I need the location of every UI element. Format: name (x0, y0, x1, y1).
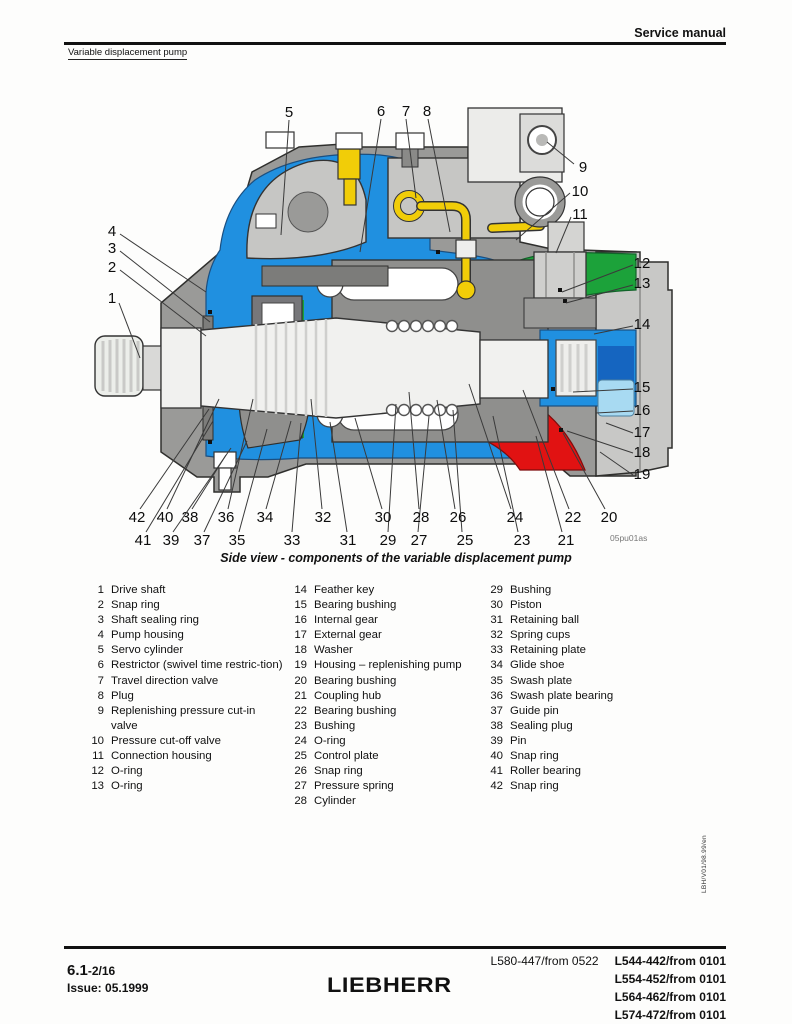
part-number: 35 (483, 674, 510, 689)
part-number: 10 (84, 734, 111, 749)
callout-number: 9 (579, 159, 587, 176)
part-label: Restrictor (swivel time restric-tion) (111, 658, 283, 673)
callout-number: 3 (108, 240, 116, 257)
part-number: 27 (287, 779, 314, 794)
callout-number: 7 (402, 103, 410, 120)
callout-number: 36 (218, 509, 235, 526)
part-number: 11 (84, 749, 111, 764)
part-number: 7 (84, 674, 111, 689)
footer-rule (64, 946, 726, 949)
callout-number: 11 (572, 206, 588, 223)
part-number: 5 (84, 643, 111, 658)
drive-shaft (95, 318, 548, 418)
callout-number: 25 (457, 532, 474, 549)
part-number: 32 (483, 628, 510, 643)
part-item: 19Housing – replenishing pump (287, 658, 483, 673)
part-label: Washer (314, 643, 483, 658)
callout-number: 28 (413, 509, 430, 526)
part-number: 12 (84, 764, 111, 779)
part-number: 29 (483, 583, 510, 598)
part-number: 30 (483, 598, 510, 613)
drawing-code: 05pu01as (610, 533, 647, 543)
part-label: O-ring (314, 734, 483, 749)
callout-number: 33 (284, 532, 301, 549)
callout-number: 5 (285, 104, 293, 121)
part-label: Drive shaft (111, 583, 283, 598)
part-label: Pressure spring (314, 779, 483, 794)
part-label: Travel direction valve (111, 674, 283, 689)
callout-number: 14 (634, 316, 651, 333)
part-item: 26Snap ring (287, 764, 483, 779)
part-label: Snap ring (510, 749, 682, 764)
part-number: 18 (287, 643, 314, 658)
part-label: O-ring (111, 764, 283, 779)
part-number: 17 (287, 628, 314, 643)
part-label: Snap ring (314, 764, 483, 779)
part-item: 18Washer (287, 643, 483, 658)
parts-column-2: 14Feather key15Bearing bushing16Internal… (287, 583, 483, 809)
part-label: Bushing (510, 583, 682, 598)
part-label: Coupling hub (314, 689, 483, 704)
document-side-code: LBH/V01/98.99/en (701, 835, 708, 893)
part-item: 22Bearing bushing (287, 704, 483, 719)
callout-number: 24 (507, 509, 524, 526)
part-item: 20Bearing bushing (287, 674, 483, 689)
part-label: Shaft sealing ring (111, 613, 283, 628)
model-code: L564-462/from 0101 (491, 988, 726, 1006)
part-label: Pressure cut-off valve (111, 734, 283, 749)
model-code: L554-452/from 0101 (491, 970, 726, 988)
part-label: Control plate (314, 749, 483, 764)
part-label: Swash plate (510, 674, 682, 689)
callout-number: 8 (423, 103, 431, 120)
part-number: 9 (84, 704, 111, 734)
part-label: Snap ring (111, 598, 283, 613)
callout-number: 16 (634, 402, 651, 419)
part-number: 26 (287, 764, 314, 779)
part-label: Guide pin (510, 704, 682, 719)
callout-number: 23 (514, 532, 531, 549)
part-item: 2Snap ring (84, 598, 287, 613)
part-label: Spring cups (510, 628, 682, 643)
callout-number: 40 (157, 509, 174, 526)
callout-number: 41 (135, 532, 152, 549)
part-number: 2 (84, 598, 111, 613)
part-item: 37Guide pin (483, 704, 693, 719)
part-item: 21Coupling hub (287, 689, 483, 704)
gear-pump-region (598, 380, 634, 416)
model-code-secondary: L580-447/from 0522 (491, 952, 599, 970)
part-label: Swash plate bearing (510, 689, 682, 704)
part-number: 1 (84, 583, 111, 598)
callout-number: 37 (194, 532, 211, 549)
part-item: 15Bearing bushing (287, 598, 483, 613)
part-number: 38 (483, 719, 510, 734)
part-number: 22 (287, 704, 314, 719)
part-number: 40 (483, 749, 510, 764)
part-label: Retaining ball (510, 613, 682, 628)
part-item: 11Connection housing (84, 749, 287, 764)
part-label: Bushing (314, 719, 483, 734)
part-label: Bearing bushing (314, 598, 483, 613)
part-number: 41 (483, 764, 510, 779)
callout-number: 34 (257, 509, 274, 526)
callout-number: 35 (229, 532, 246, 549)
callout-number: 4 (108, 223, 116, 240)
callout-number: 18 (634, 444, 651, 461)
callout-number: 15 (634, 379, 651, 396)
part-label: Bearing bushing (314, 704, 483, 719)
part-label: Pin (510, 734, 682, 749)
part-item: 32Spring cups (483, 628, 693, 643)
part-number: 15 (287, 598, 314, 613)
part-item: 25Control plate (287, 749, 483, 764)
callout-number: 21 (558, 532, 575, 549)
part-item: 24O-ring (287, 734, 483, 749)
part-label: Bearing bushing (314, 674, 483, 689)
part-number: 39 (483, 734, 510, 749)
part-number: 6 (84, 658, 111, 673)
part-label: Connection housing (111, 749, 283, 764)
part-item: 7Travel direction valve (84, 674, 287, 689)
part-item: 35Swash plate (483, 674, 693, 689)
part-item: 9Replenishing pressure cut-in valve (84, 704, 287, 734)
part-label: Replenishing pressure cut-in valve (111, 704, 283, 734)
callout-number: 39 (163, 532, 180, 549)
callout-number: 1 (108, 290, 116, 307)
part-label: Plug (111, 689, 283, 704)
part-item: 27Pressure spring (287, 779, 483, 794)
callout-number: 27 (411, 532, 428, 549)
part-item: 38Sealing plug (483, 719, 693, 734)
part-item: 28Cylinder (287, 794, 483, 809)
footer-page-block: 6.1-2/16 Issue: 05.1999 (67, 962, 148, 997)
part-item: 14Feather key (287, 583, 483, 598)
part-number: 14 (287, 583, 314, 598)
part-label: Cylinder (314, 794, 483, 809)
parts-list: 1Drive shaft2Snap ring3Shaft sealing rin… (84, 583, 693, 809)
part-number: 34 (483, 658, 510, 673)
part-item: 33Retaining plate (483, 643, 693, 658)
callout-number: 17 (634, 424, 651, 441)
part-label: O-ring (111, 779, 283, 794)
part-item: 23Bushing (287, 719, 483, 734)
part-item: 4Pump housing (84, 628, 287, 643)
part-number: 16 (287, 613, 314, 628)
callout-number: 6 (377, 103, 385, 120)
part-number: 4 (84, 628, 111, 643)
part-item: 30Piston (483, 598, 693, 613)
part-item: 29Bushing (483, 583, 693, 598)
part-item: 31Retaining ball (483, 613, 693, 628)
parts-column-1: 1Drive shaft2Snap ring3Shaft sealing rin… (84, 583, 287, 809)
pump-cross-section-diagram: 1234567891011121314151617181920212223242… (0, 0, 792, 552)
part-item: 40Snap ring (483, 749, 693, 764)
part-item: 17External gear (287, 628, 483, 643)
part-number: 23 (287, 719, 314, 734)
issue-date: Issue: 05.1999 (67, 980, 148, 997)
part-item: 41Roller bearing (483, 764, 693, 779)
part-label: Roller bearing (510, 764, 682, 779)
part-label: Servo cylinder (111, 643, 283, 658)
part-number: 28 (287, 794, 314, 809)
part-number: 13 (84, 779, 111, 794)
callout-number: 2 (108, 259, 116, 276)
liebherr-logo: LIEBHERR (327, 974, 452, 998)
part-item: 13O-ring (84, 779, 287, 794)
figure-caption: Side view - components of the variable d… (0, 551, 792, 565)
part-item: 1Drive shaft (84, 583, 287, 598)
part-item: 36Swash plate bearing (483, 689, 693, 704)
part-label: Retaining plate (510, 643, 682, 658)
part-number: 20 (287, 674, 314, 689)
part-item: 12O-ring (84, 764, 287, 779)
page-suffix: -2/16 (88, 964, 115, 978)
part-label: External gear (314, 628, 483, 643)
part-number: 3 (84, 613, 111, 628)
callout-number: 20 (601, 509, 618, 526)
part-label: Feather key (314, 583, 483, 598)
model-codes: L580-447/from 0522 L544-442/from 0101 L5… (491, 952, 726, 1024)
callout-number: 10 (572, 183, 589, 200)
part-label: Piston (510, 598, 682, 613)
part-number: 31 (483, 613, 510, 628)
part-number: 19 (287, 658, 314, 673)
callout-leader-line (120, 234, 206, 292)
part-item: 16Internal gear (287, 613, 483, 628)
part-number: 36 (483, 689, 510, 704)
part-number: 33 (483, 643, 510, 658)
part-label: Housing – replenishing pump (314, 658, 483, 673)
part-item: 5Servo cylinder (84, 643, 287, 658)
callout-number: 29 (380, 532, 397, 549)
part-item: 3Shaft sealing ring (84, 613, 287, 628)
callout-number: 26 (450, 509, 467, 526)
callout-number: 30 (375, 509, 392, 526)
part-number: 42 (483, 779, 510, 794)
part-item: 10Pressure cut-off valve (84, 734, 287, 749)
part-item: 39Pin (483, 734, 693, 749)
callout-number: 12 (634, 255, 651, 272)
part-label: Pump housing (111, 628, 283, 643)
callout-number: 38 (182, 509, 199, 526)
callout-number: 42 (129, 509, 146, 526)
callout-number: 32 (315, 509, 332, 526)
part-label: Glide shoe (510, 658, 682, 673)
callout-number: 19 (634, 466, 651, 483)
part-number: 8 (84, 689, 111, 704)
part-label: Snap ring (510, 779, 682, 794)
parts-column-3: 29Bushing30Piston31Retaining ball32Sprin… (483, 583, 693, 809)
callout-number: 22 (565, 509, 582, 526)
part-number: 37 (483, 704, 510, 719)
page-number: 6.1 (67, 962, 88, 979)
callout-number: 13 (634, 275, 651, 292)
model-code: L544-442/from 0101 (615, 952, 726, 970)
callout-number: 31 (340, 532, 357, 549)
part-item: 42Snap ring (483, 779, 693, 794)
part-number: 24 (287, 734, 314, 749)
part-item: 6Restrictor (swivel time restric-tion) (84, 658, 287, 673)
part-label: Sealing plug (510, 719, 682, 734)
part-item: 8Plug (84, 689, 287, 704)
part-item: 34Glide shoe (483, 658, 693, 673)
part-number: 21 (287, 689, 314, 704)
part-number: 25 (287, 749, 314, 764)
model-code: L574-472/from 0101 (491, 1006, 726, 1024)
part-label: Internal gear (314, 613, 483, 628)
